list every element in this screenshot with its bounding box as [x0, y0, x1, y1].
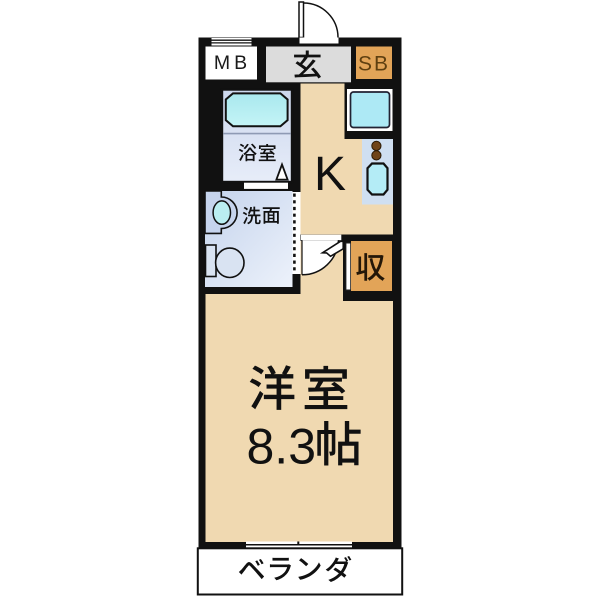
svg-text:MB: MB — [214, 52, 251, 74]
svg-text:K: K — [314, 148, 346, 201]
svg-text:SB: SB — [358, 53, 390, 76]
svg-text:8.3: 8.3 — [247, 419, 317, 475]
